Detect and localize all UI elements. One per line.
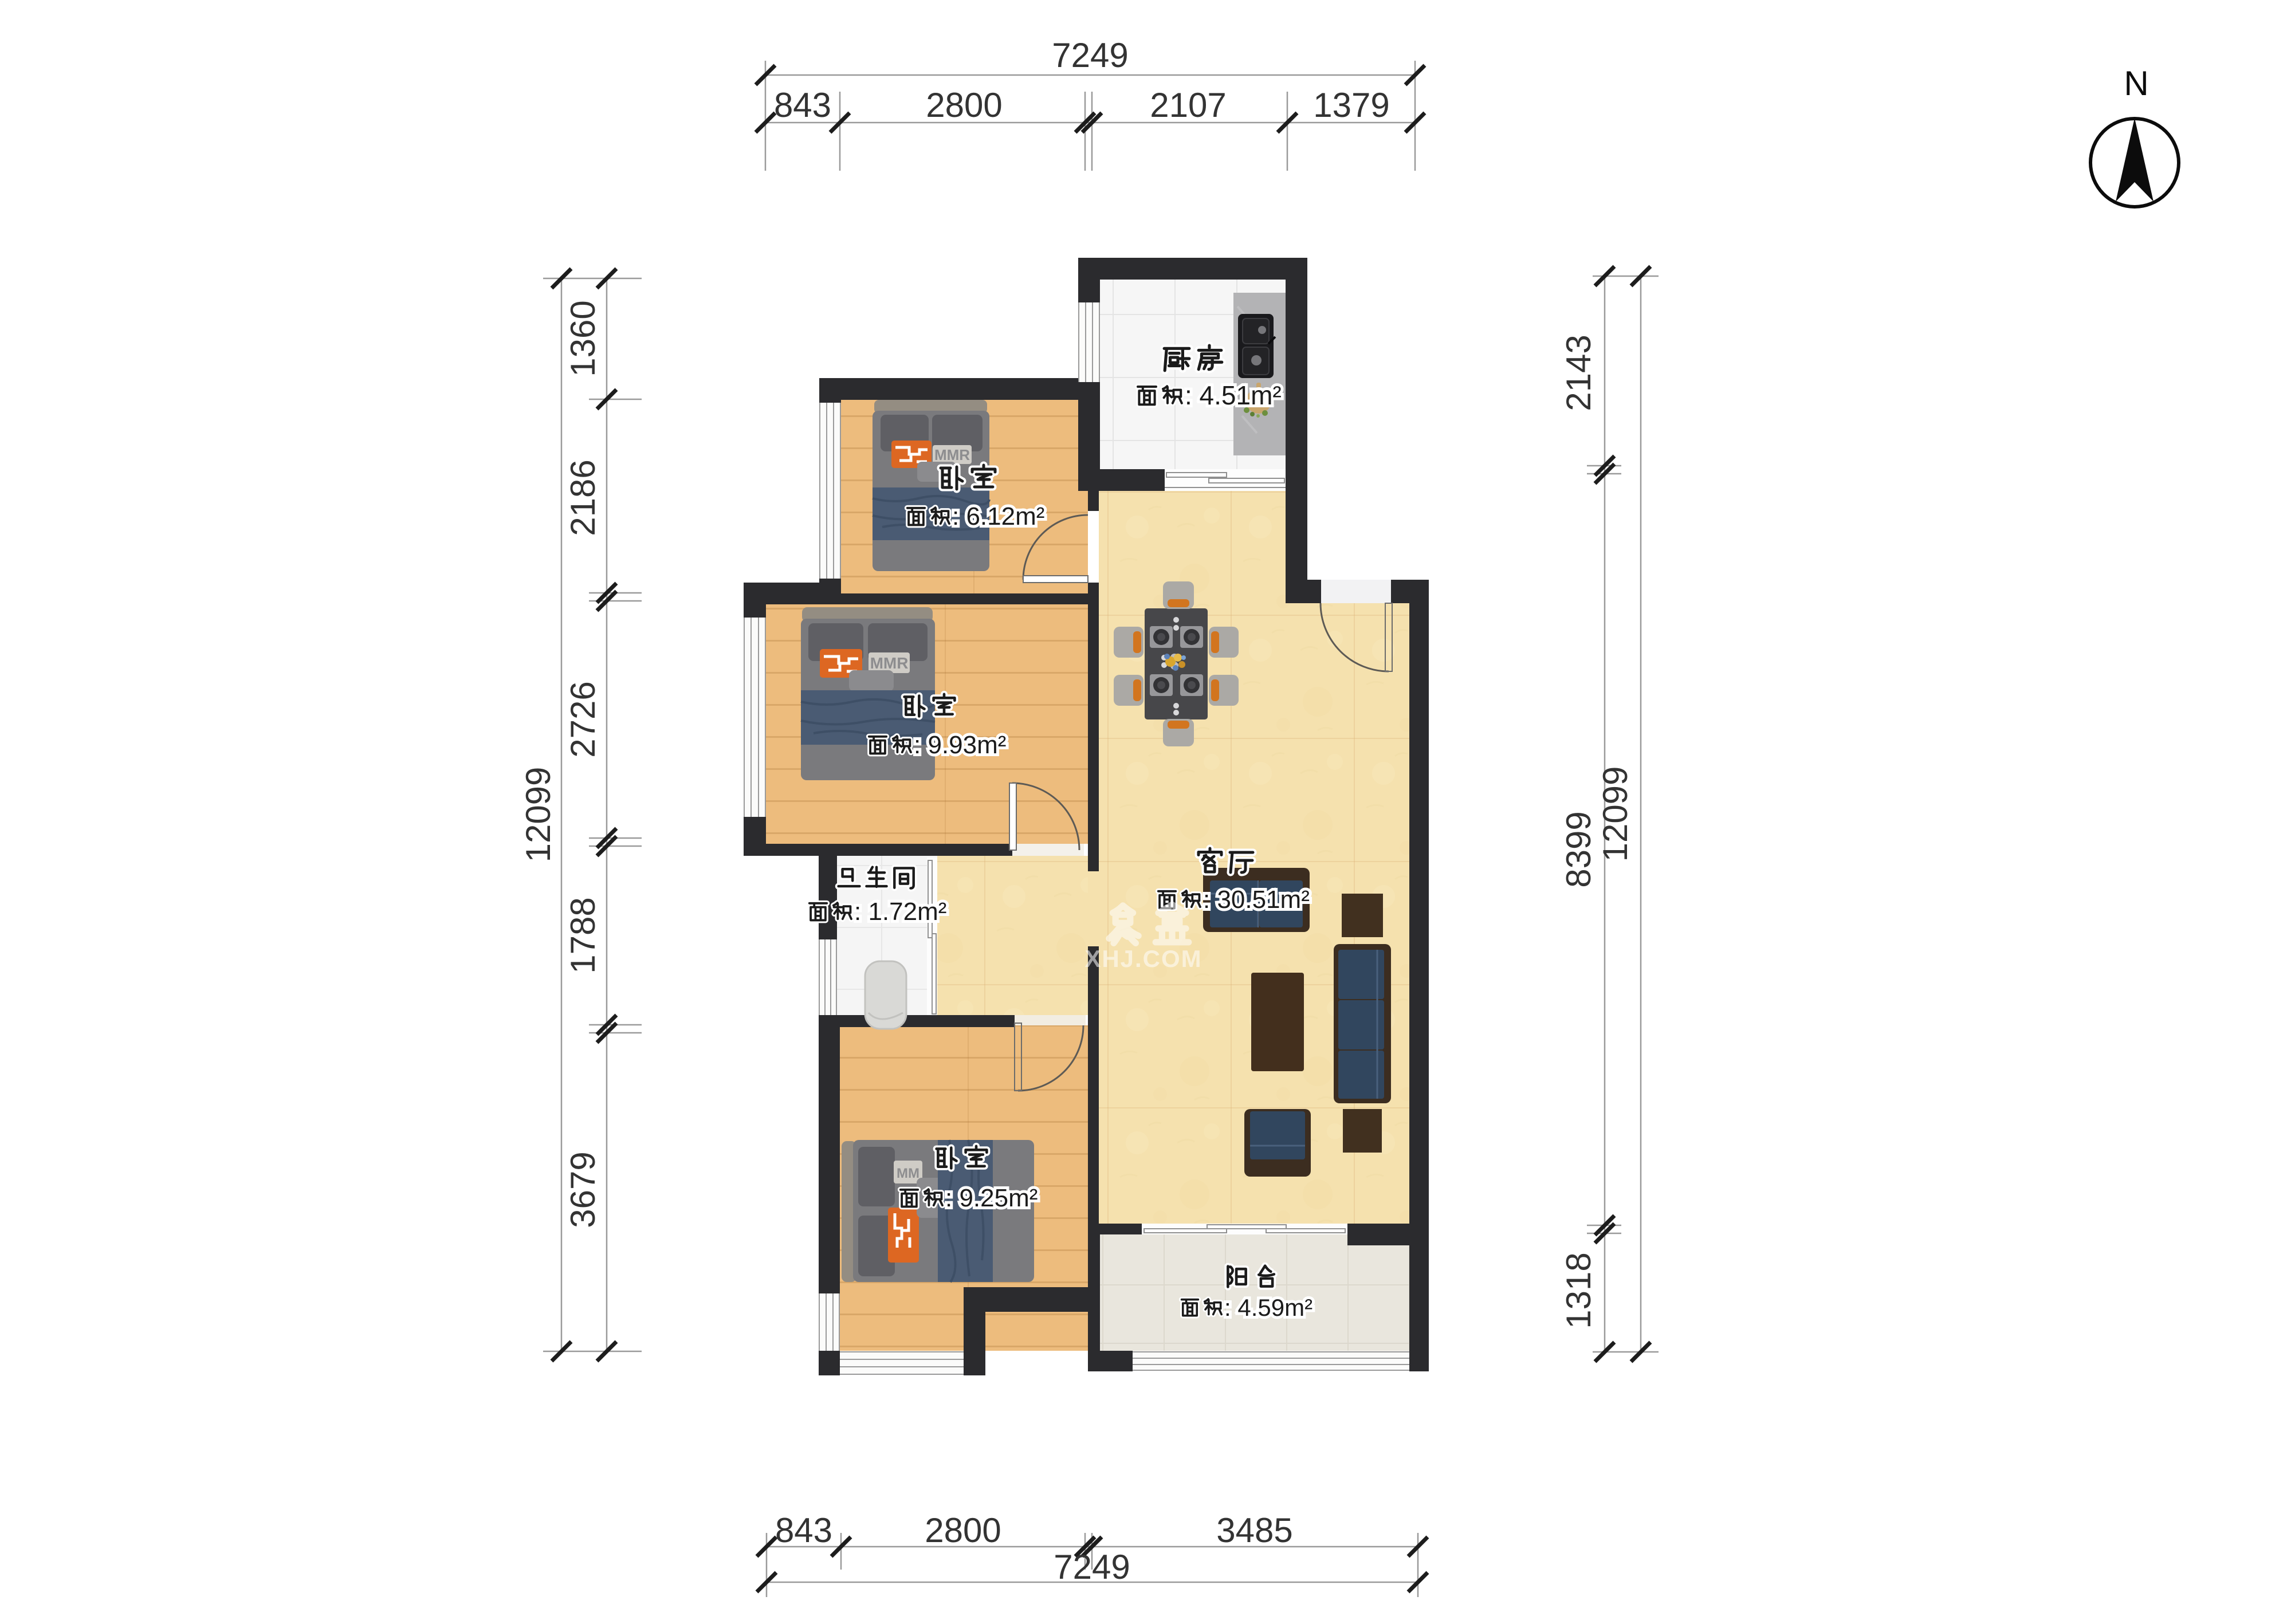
svg-text:2143: 2143	[1559, 335, 1598, 411]
svg-text:843: 843	[775, 1511, 832, 1550]
svg-text:MM: MM	[897, 1166, 919, 1181]
svg-text:2107: 2107	[1150, 86, 1226, 124]
svg-text:12099: 12099	[519, 767, 557, 863]
svg-text:2726: 2726	[564, 681, 602, 757]
svg-text:1788: 1788	[564, 897, 602, 973]
svg-text:3485: 3485	[1216, 1511, 1292, 1550]
svg-text:12099: 12099	[1596, 766, 1634, 862]
svg-text:2186: 2186	[564, 459, 602, 536]
svg-text:: 4.51m²: : 4.51m²	[1185, 380, 1282, 410]
svg-text:2800: 2800	[925, 1511, 1001, 1550]
svg-text:2800: 2800	[926, 86, 1002, 124]
svg-text:1360: 1360	[564, 300, 602, 376]
svg-text:1379: 1379	[1313, 86, 1389, 124]
svg-text:: 6.12m²: : 6.12m²	[952, 502, 1044, 530]
svg-text:MMR: MMR	[934, 446, 970, 463]
svg-text:8399: 8399	[1559, 811, 1598, 887]
svg-text:MMR: MMR	[870, 654, 909, 672]
svg-text:7249: 7249	[1054, 1548, 1130, 1586]
svg-text:: 4.59m²: : 4.59m²	[1224, 1294, 1312, 1321]
svg-text:: 9.25m²: : 9.25m²	[945, 1184, 1038, 1212]
svg-text:843: 843	[774, 86, 831, 124]
svg-text:N: N	[2124, 64, 2148, 103]
svg-text:1318: 1318	[1559, 1252, 1598, 1328]
svg-text:XHJ.COM: XHJ.COM	[1084, 945, 1202, 972]
svg-text:: 9.93m²: : 9.93m²	[914, 731, 1006, 759]
svg-text:3679: 3679	[564, 1151, 602, 1228]
svg-text:: 30.51m²: : 30.51m²	[1203, 886, 1310, 914]
svg-text:: 1.72m²: : 1.72m²	[854, 898, 946, 926]
svg-text:7249: 7249	[1052, 36, 1128, 74]
